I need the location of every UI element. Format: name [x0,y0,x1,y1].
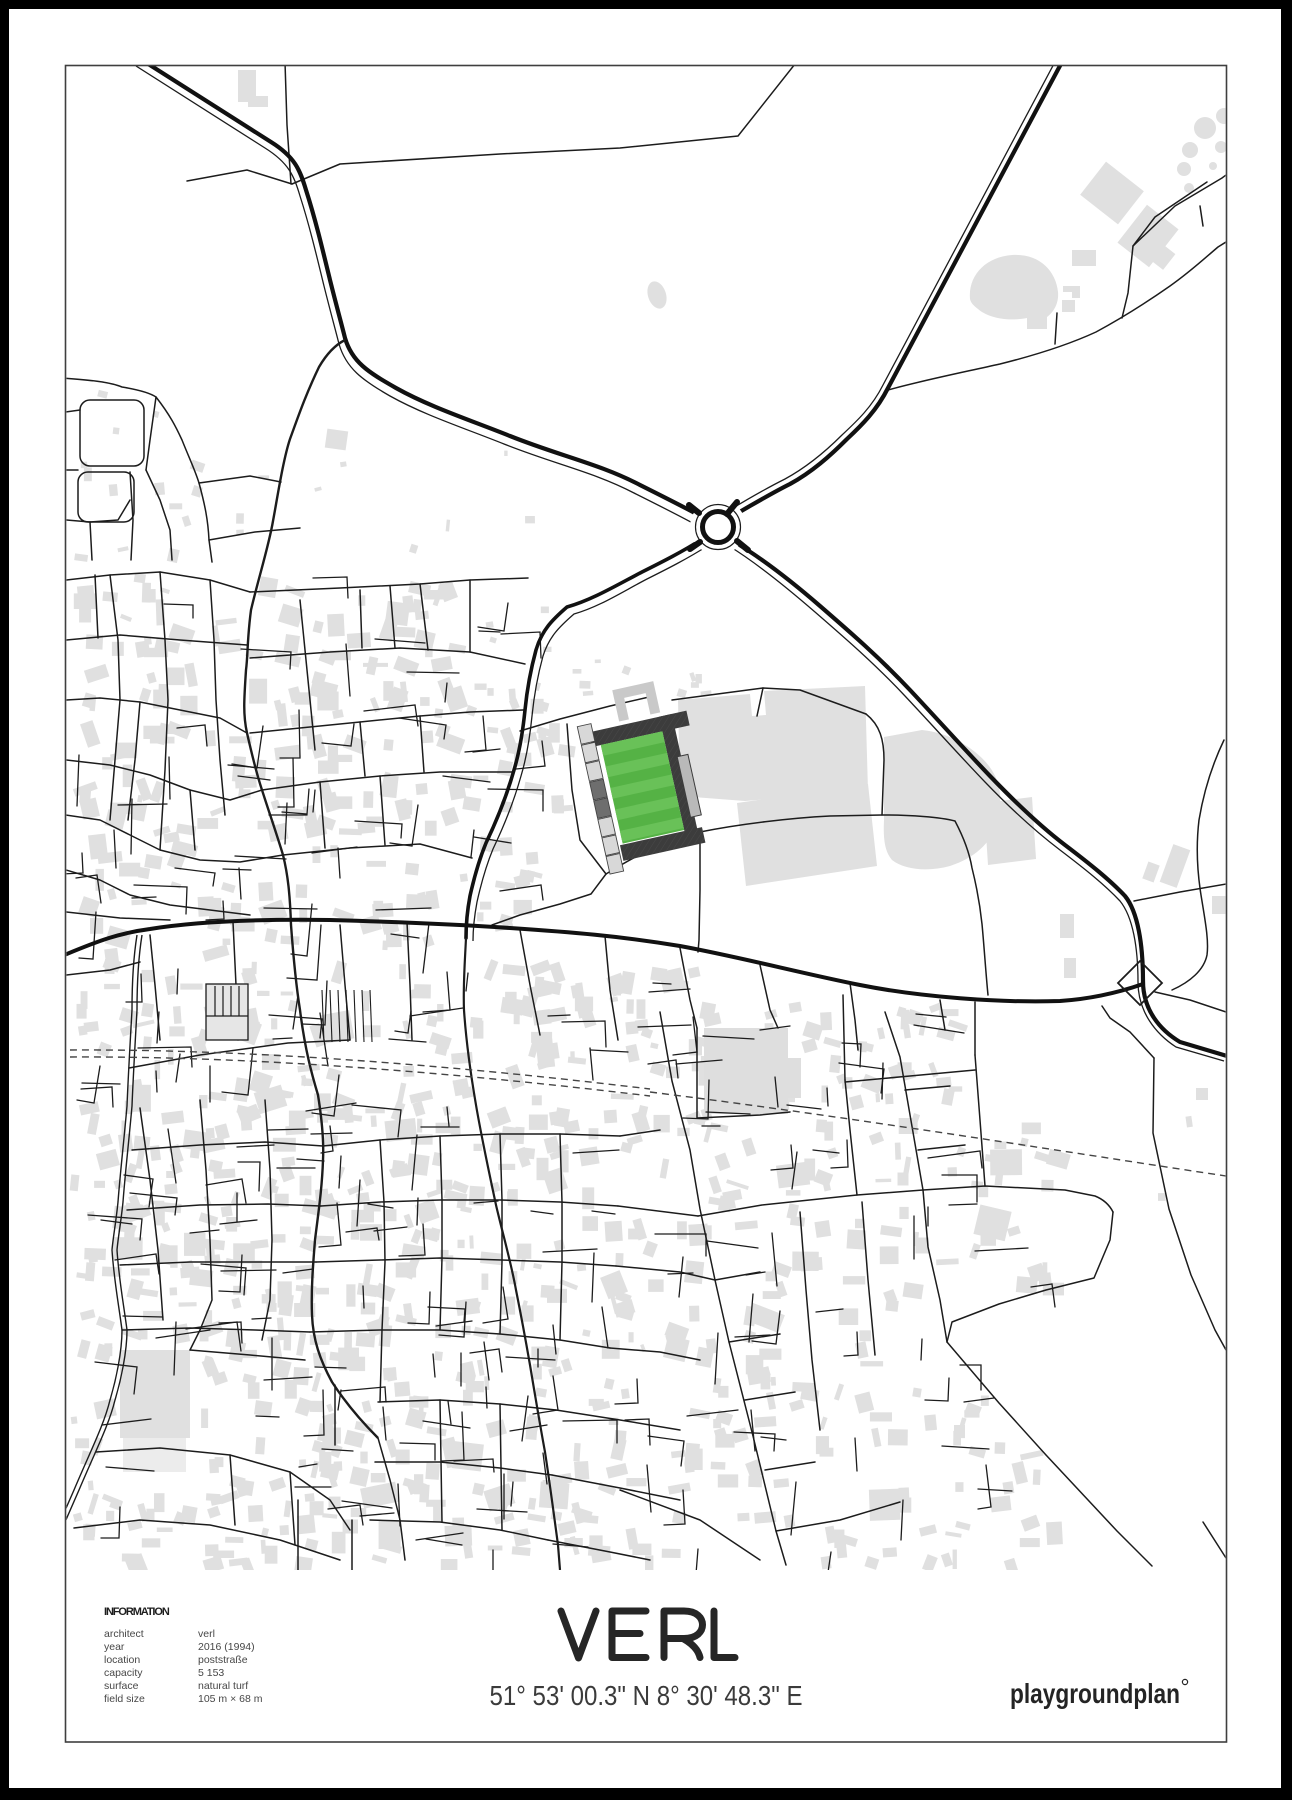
svg-text:architect: architect [104,1628,144,1640]
svg-text:year: year [104,1641,125,1653]
svg-text:location: location [104,1654,140,1666]
svg-text:105 m × 68 m: 105 m × 68 m [198,1693,263,1705]
svg-text:playgroundplan: playgroundplan [1010,1678,1180,1709]
svg-text:51° 53' 00.3" N 8° 30' 48.3" E: 51° 53' 00.3" N 8° 30' 48.3" E [490,1680,803,1711]
svg-text:verl: verl [198,1628,215,1640]
svg-text:2016 (1994): 2016 (1994) [198,1641,255,1653]
svg-text:natural turf: natural turf [198,1680,248,1692]
svg-text:poststraße: poststraße [198,1654,248,1666]
svg-text:5 153: 5 153 [198,1667,224,1679]
svg-text:surface: surface [104,1680,139,1692]
svg-text:field size: field size [104,1693,145,1705]
svg-text:INFORMATION: INFORMATION [104,1606,170,1618]
svg-text:capacity: capacity [104,1667,143,1679]
